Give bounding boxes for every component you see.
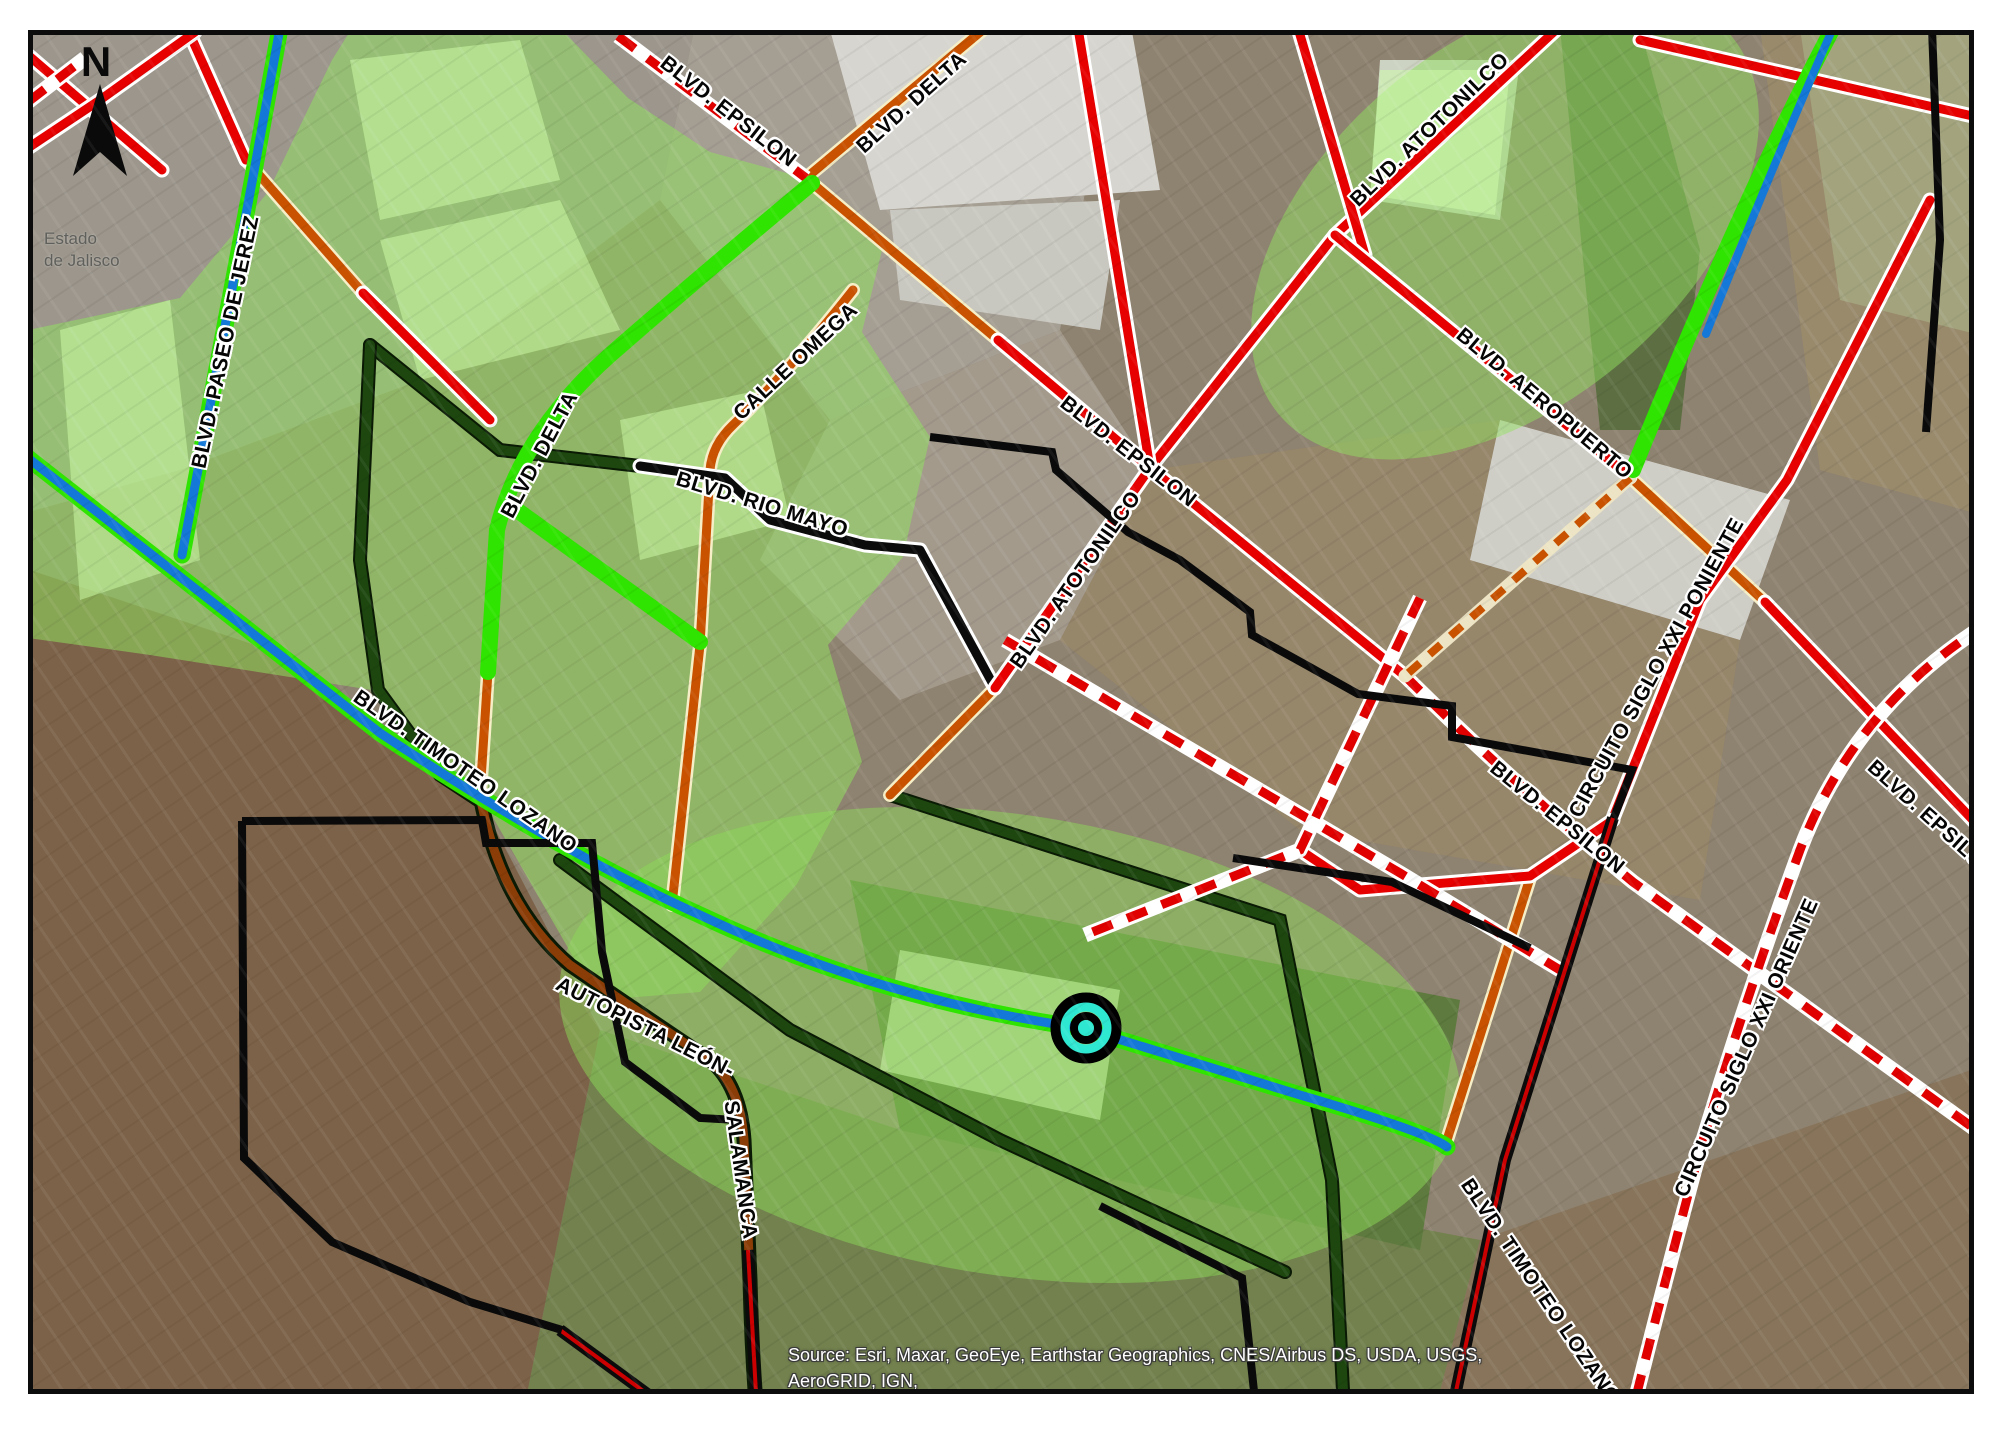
margin-bottom — [0, 1394, 2000, 1429]
selected-point-marker-icon[interactable] — [1056, 998, 1116, 1058]
region-label: Estado de Jalisco — [44, 228, 120, 272]
margin-left — [0, 0, 28, 1429]
attribution-line1: Source: Esri, Maxar, GeoEye, Earthstar G… — [788, 1342, 1548, 1394]
north-arrow-label: N — [81, 38, 111, 86]
margin-top — [0, 0, 2000, 30]
margin-right — [1974, 0, 2000, 1429]
map-canvas[interactable]: N Estado de Jalisco BLVD. EPSILON BLVD. … — [0, 0, 2000, 1429]
region-label-line1: Estado — [44, 228, 120, 250]
map-artwork — [0, 0, 2000, 1429]
region-label-line2: de Jalisco — [44, 250, 120, 272]
